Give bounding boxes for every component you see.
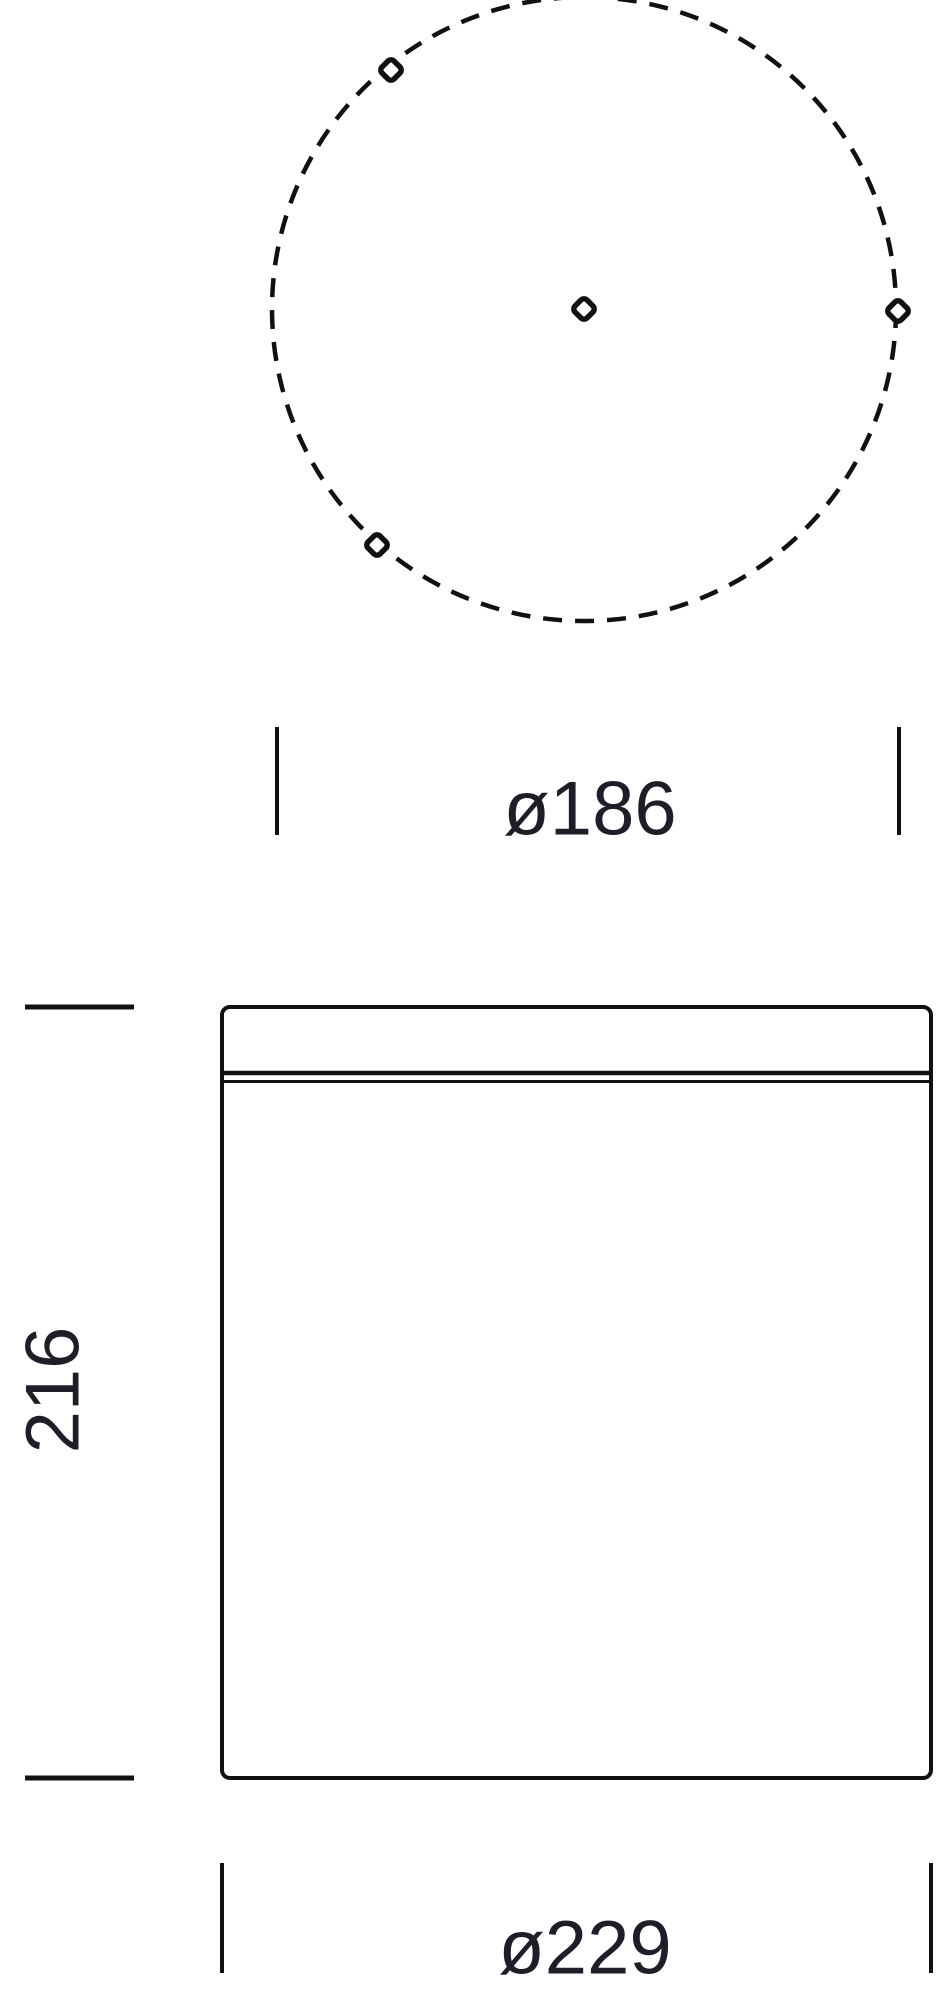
- drawing-canvas: ø186 216 ø229: [0, 0, 947, 2000]
- dimension-label-body-diameter: ø229: [498, 1905, 671, 1990]
- dimension-label-height: 216: [10, 1327, 95, 1454]
- front-view: [222, 1007, 931, 1778]
- mounting-hole-marker-right: [886, 299, 910, 323]
- dimension-top-diameter: ø186: [277, 727, 899, 851]
- dimension-body-diameter: ø229: [222, 1863, 931, 1990]
- technical-drawing: ø186 216 ø229: [0, 0, 947, 2000]
- mounting-hole-marker-lower-left: [365, 533, 389, 557]
- center-hole-marker: [572, 297, 596, 321]
- top-view: [272, 0, 910, 621]
- dimension-label-top-diameter: ø186: [503, 766, 676, 851]
- dimension-height: 216: [10, 1007, 134, 1778]
- fixture-body-outline: [222, 1007, 931, 1778]
- mounting-hole-marker-upper-left: [379, 58, 403, 82]
